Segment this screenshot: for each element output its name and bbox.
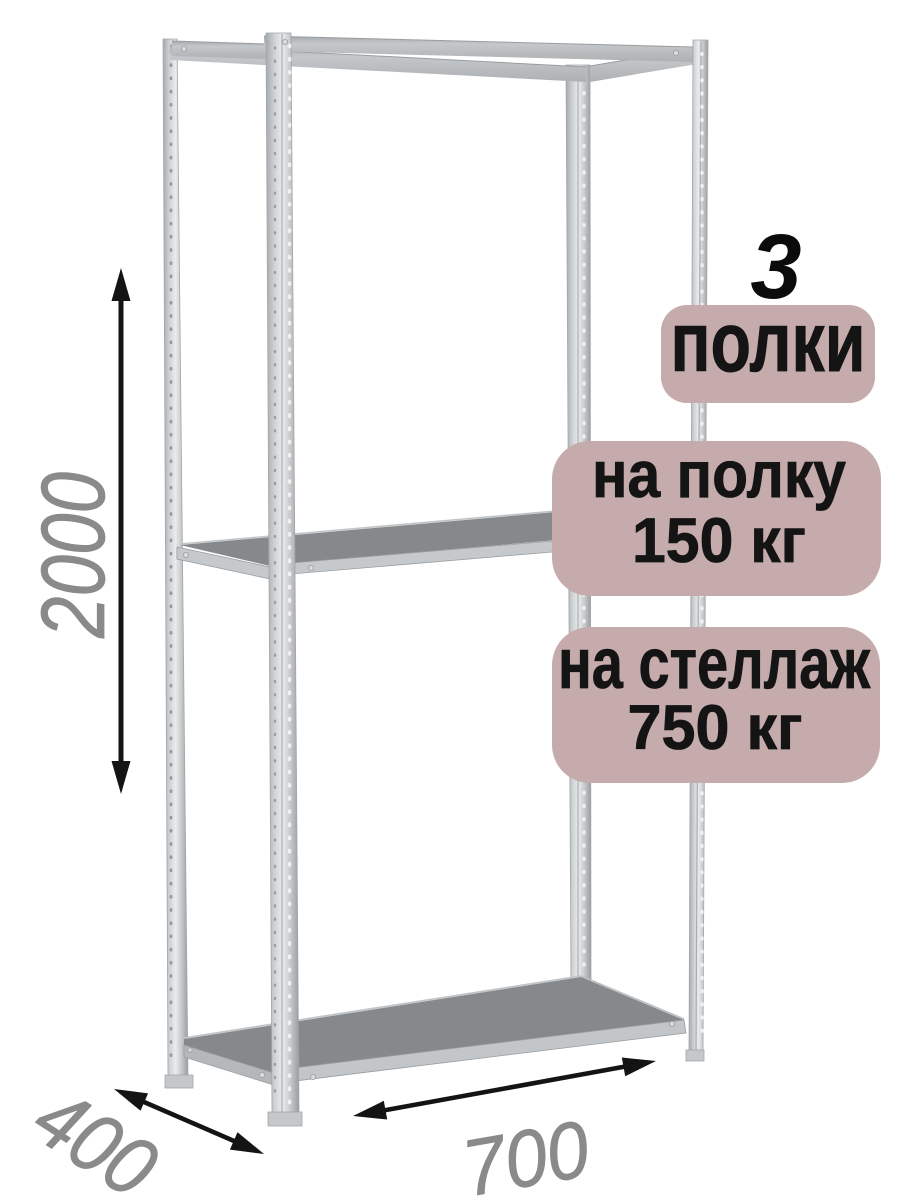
svg-text:2000: 2000: [24, 472, 124, 639]
svg-text:750 кг: 750 кг: [628, 693, 803, 763]
svg-text:150 кг: 150 кг: [632, 506, 806, 576]
svg-text:на полку: на полку: [592, 437, 846, 511]
svg-text:полки: полки: [671, 295, 866, 389]
